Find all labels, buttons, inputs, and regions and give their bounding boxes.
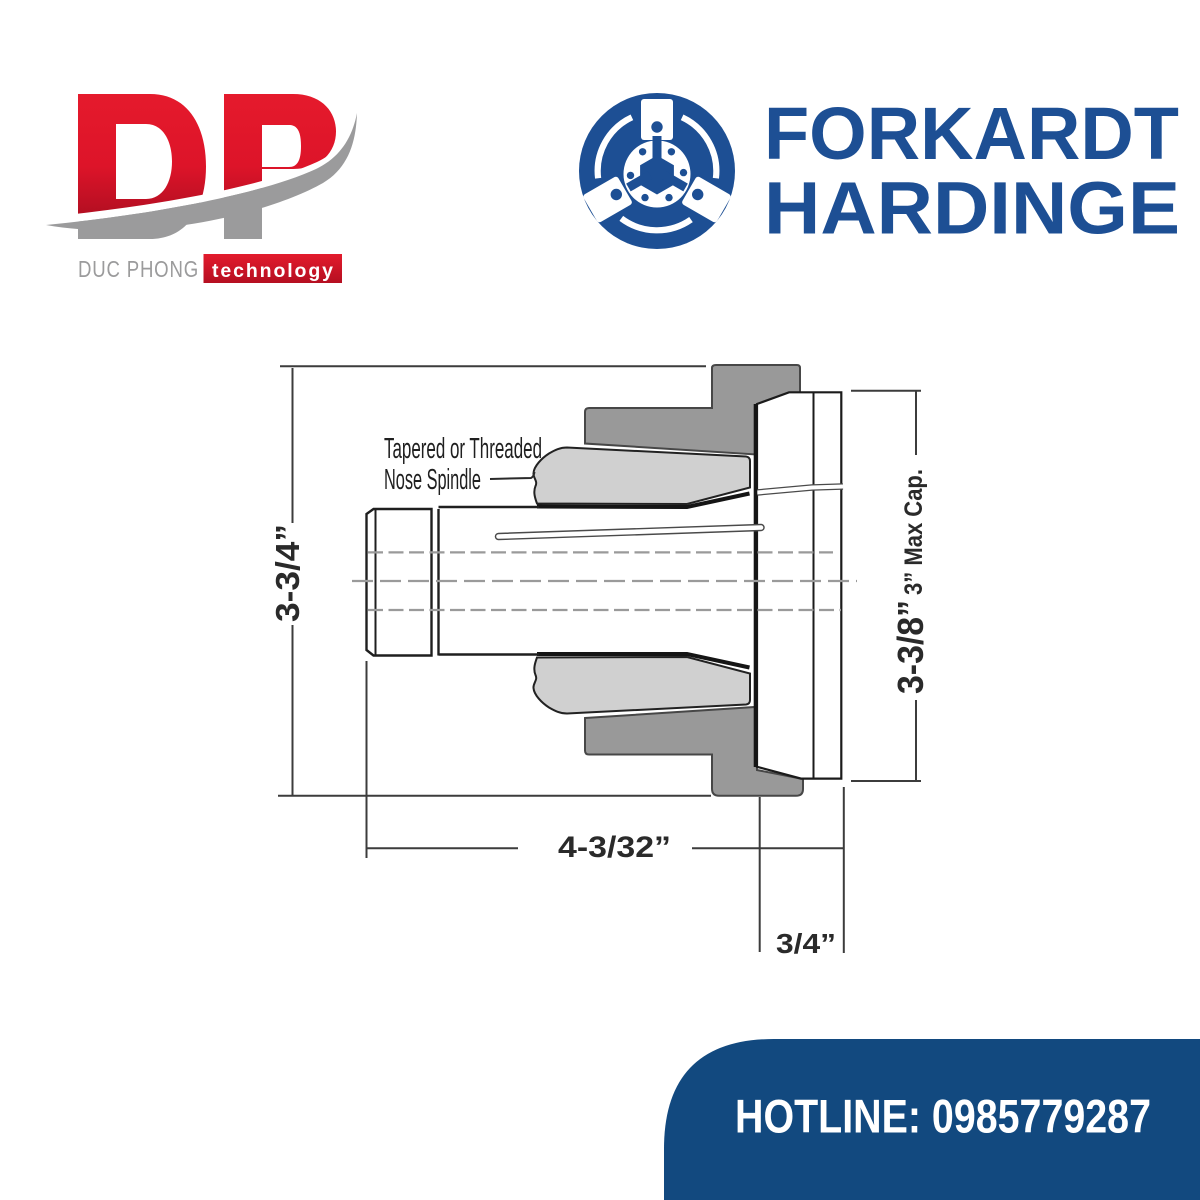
svg-text:HOTLINE: 0985779287: HOTLINE: 0985779287: [735, 1090, 1151, 1143]
svg-text:4-3/32”: 4-3/32”: [558, 831, 671, 864]
svg-text:Tapered or Threaded: Tapered or Threaded: [384, 433, 542, 465]
svg-text:3-3/8”: 3-3/8”: [890, 600, 931, 694]
svg-text:3” Max Cap.: 3” Max Cap.: [900, 469, 928, 595]
svg-text:Nose Spindle: Nose Spindle: [384, 464, 481, 496]
svg-text:technology: technology: [212, 260, 333, 282]
svg-text:3/4”: 3/4”: [776, 928, 836, 959]
svg-text:3-3/4”: 3-3/4”: [269, 524, 306, 622]
svg-text:HARDINGE: HARDINGE: [764, 167, 1180, 250]
svg-text:DUC PHONG: DUC PHONG: [78, 256, 199, 282]
svg-text:FORKARDT: FORKARDT: [764, 92, 1179, 175]
